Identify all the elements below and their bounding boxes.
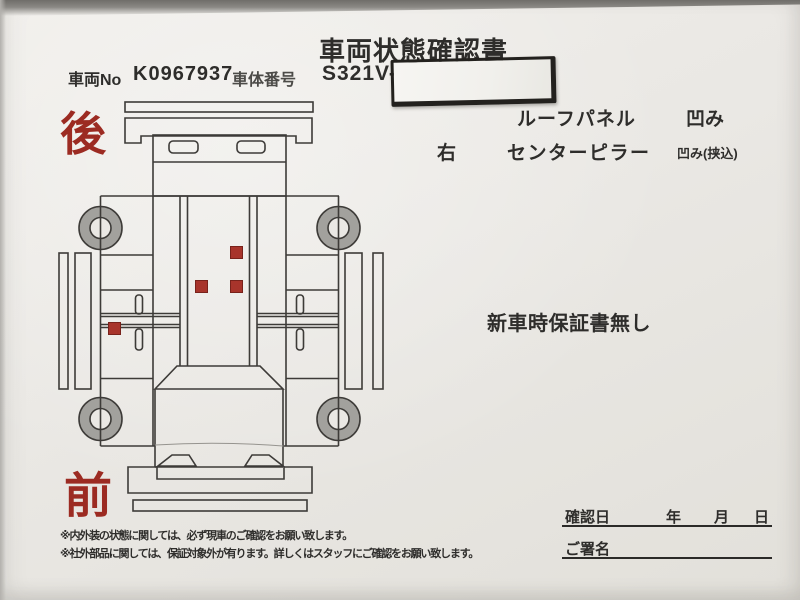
damage-row-part: センターピラー [507,138,651,165]
damage-row-position: 右 [437,138,456,165]
disclaimer-note: ※内外装の状態に関しては、必ず現車のご確認をお願い致します。 [60,527,352,543]
month-label: 月 [714,506,729,527]
wheel-icons [79,207,360,441]
confirm-date-label: 確認日 [565,506,610,527]
damage-row-part: ルーフパネル [517,104,636,131]
vehicle-no-label: 車両No [68,66,121,90]
damage-row-condition: 凹み(挟込) [677,143,738,162]
confirm-date-line [562,525,772,527]
signature-label: ご署名 [565,538,610,559]
rear-label: 後 [60,98,106,164]
year-label: 年 [666,506,681,527]
warranty-note: 新車時保証書無し [487,307,651,336]
vehicle-condition-sheet-photo: 車両状態確認書 車両No K0967937 車体番号 S321V- 後 前 ルー… [0,0,800,600]
damage-row-condition: 凹み [686,104,724,131]
body-no-label: 車体番号 [232,66,296,90]
signature-line [562,557,772,559]
front-label: 前 [64,456,112,526]
redaction-tape [390,56,556,107]
vehicle-no-value: K0967937 [133,63,233,86]
day-label: 日 [754,506,769,527]
disclaimer-note: ※社外部品に関しては、保証対象外が有ります。詳しくはスタッフにご確認をお願い致し… [60,545,478,561]
body-no-prefix: S321V- [322,62,397,86]
